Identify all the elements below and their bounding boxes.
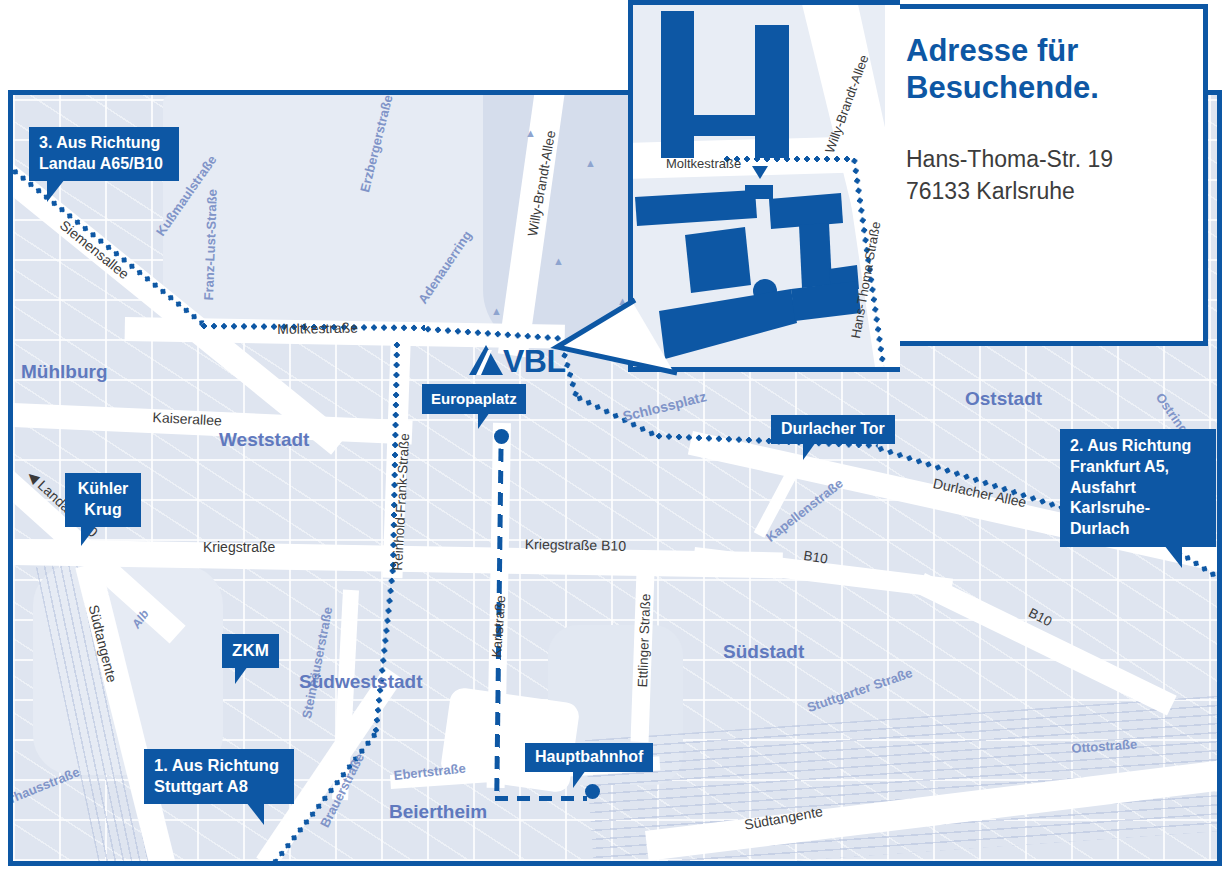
inset-street-label-moltkestrasse: Moltkestraße	[666, 156, 741, 171]
inset-route-dotted-moltkestrasse	[724, 156, 854, 162]
inset-address-panel: Adresse für Besuchende. Hans-Thoma-Str. …	[884, 4, 1208, 346]
badge-line: Karlsruhe-Durlach	[1070, 498, 1208, 540]
inset-address-line: Hans-Thoma-Str. 19	[906, 143, 1113, 175]
hauptbahnhof-marker	[585, 784, 600, 799]
street-label-kriegstrasse-b10: Kriegstraße B10	[525, 536, 626, 554]
inset-title-line: Besuchende.	[906, 70, 1099, 107]
badge-route-stuttgart: 1. Aus Richtung Stuttgart A8	[144, 749, 294, 804]
badge-zkm: ZKM	[222, 634, 279, 668]
inset-address: Hans-Thoma-Str. 19 76133 Karlsruhe	[906, 143, 1113, 207]
badge-line: Durlacher Tor	[781, 419, 885, 440]
district-label-suedstadt: Südstadt	[723, 641, 804, 663]
badge-line: 3. Aus Richtung	[39, 133, 169, 154]
badge-durlacher-tor: Durlacher Tor	[771, 415, 895, 444]
inset-title-line: Adresse für	[906, 33, 1099, 70]
district-label-oststadt: Oststadt	[965, 388, 1042, 410]
district-label-suedweststadt: Südweststadt	[299, 671, 423, 693]
inset-title: Adresse für Besuchende.	[906, 33, 1099, 106]
route-dashed-hauptbahnhof	[495, 796, 587, 801]
tree-icon: ▲	[585, 157, 596, 169]
badge-line: Stuttgart A8	[154, 776, 284, 797]
badge-line: Krug	[75, 500, 131, 521]
vbl-triangle-icon	[469, 345, 503, 375]
tree-icon: ▲	[491, 305, 502, 317]
district-label-beiertheim: Beiertheim	[389, 801, 487, 823]
inset-destination-arrow-icon	[752, 166, 768, 179]
badge-route-landau: 3. Aus Richtung Landau A65/B10	[29, 127, 179, 181]
street-label-moltkestrasse: Moltkestraße	[277, 320, 358, 337]
directions-map-page: ▲ ▲ ▲ ▲ ▲ ▲ Siemensallee Kaiserallee Mol…	[0, 0, 1230, 874]
district-label-weststadt: Weststadt	[219, 429, 309, 451]
badge-line: 2. Aus Richtung	[1070, 436, 1208, 457]
badge-line: Ausfahrt	[1070, 478, 1208, 499]
badge-line: ZKM	[232, 640, 269, 662]
badge-route-frankfurt: 2. Aus Richtung Frankfurt A5, Ausfahrt K…	[1060, 429, 1216, 547]
badge-line: 1. Aus Richtung	[154, 755, 284, 776]
europaplatz-marker	[494, 429, 509, 444]
badge-line: Europaplatz	[431, 389, 517, 409]
district-label-muehlburg: Mühlburg	[21, 361, 108, 383]
badge-line: Frankfurt A5,	[1070, 457, 1208, 478]
badge-line: Landau A65/B10	[39, 154, 169, 175]
badge-hauptbahnhof: Hauptbahnhof	[525, 743, 653, 772]
badge-europaplatz: Europaplatz	[422, 384, 526, 414]
inset-callout-tail	[545, 293, 705, 393]
road-station-forecourt	[439, 686, 580, 793]
street-label-kriegstrasse: Kriegstraße	[203, 539, 275, 555]
tree-icon: ▲	[553, 255, 564, 267]
inset-address-line: 76133 Karlsruhe	[906, 175, 1113, 207]
badge-kuehler-krug: Kühler Krug	[65, 473, 141, 527]
tree-icon: ▲	[525, 127, 536, 139]
badge-line: Hauptbahnhof	[535, 747, 643, 768]
badge-line: Kühler	[75, 479, 131, 500]
